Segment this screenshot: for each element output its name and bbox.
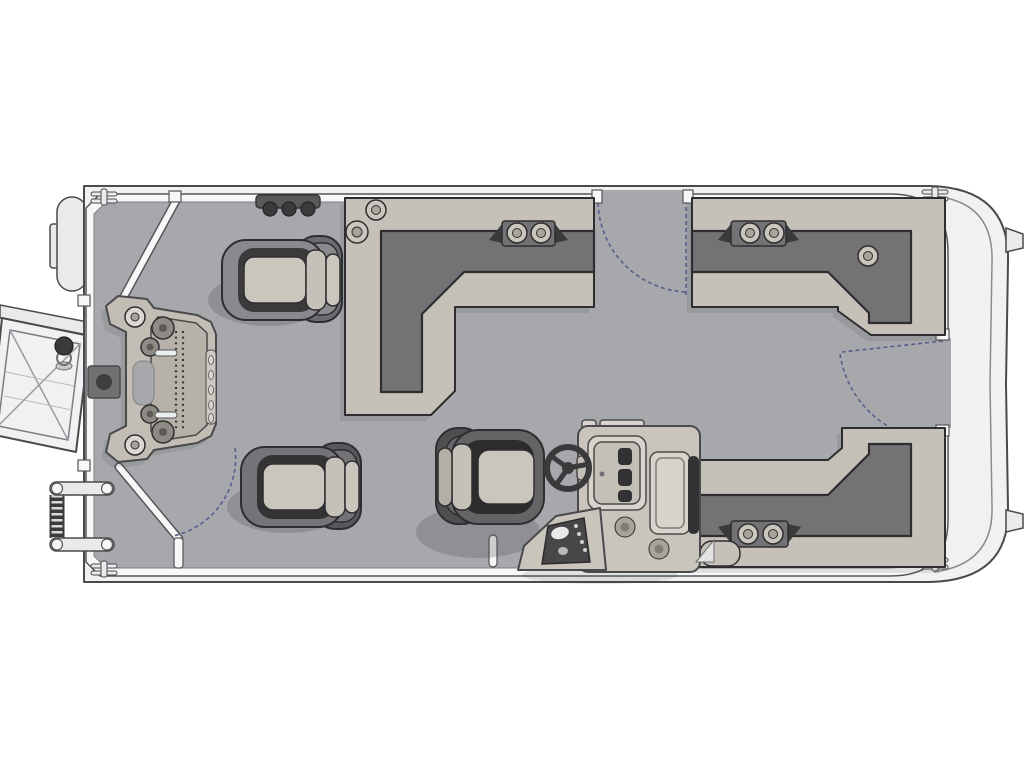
stern-gate-opening — [935, 338, 951, 428]
wheel-hub — [562, 462, 574, 474]
console-cup-inner — [147, 411, 154, 418]
edge-fastener — [209, 401, 214, 410]
ladder-rung-end — [52, 539, 63, 550]
pontoon-floorplan-page — [0, 0, 1024, 768]
chair-back-cushion-outer — [345, 461, 359, 513]
ladder-rung-end — [52, 483, 63, 494]
edge-fastener — [209, 386, 214, 395]
edge-fastener — [209, 356, 214, 365]
chair-back-cushion — [325, 457, 345, 517]
cup-holder-inner — [770, 229, 779, 238]
cup-holder-inner — [744, 530, 753, 539]
cleat-stem — [101, 189, 107, 205]
bow-gate-post-lower — [78, 460, 90, 471]
ladder-rung-end — [102, 483, 113, 494]
console-hinge-pin — [155, 350, 177, 356]
bow-rail-end-post — [174, 538, 183, 568]
corner-cup-holder-inner — [864, 252, 873, 261]
ladder-rung-end — [102, 539, 113, 550]
fitting-knob — [301, 202, 315, 216]
console-cup-inner — [159, 324, 167, 332]
chair-back-cushion — [452, 444, 472, 510]
gauge-slot — [618, 448, 632, 465]
port-aft-captain-chair — [227, 443, 361, 533]
tow-bar-fitting — [256, 195, 320, 216]
helm-captain-chair — [416, 428, 544, 558]
chair-back-cushion — [306, 250, 326, 310]
console-cup-inner — [159, 428, 167, 436]
port-forward-captain-chair — [208, 236, 342, 326]
corner-cup-holder-inner — [372, 206, 381, 215]
panel-button — [574, 524, 578, 528]
bow-nose-cone — [50, 197, 87, 291]
console-cup-inner — [655, 545, 664, 554]
bow-gate-console — [88, 296, 216, 468]
bow-nose-body — [57, 197, 87, 291]
fitting-knob — [263, 202, 277, 216]
console-hinge-pin — [155, 412, 177, 418]
engine-mount-tab-top — [1006, 228, 1023, 252]
engine-mount-tab-bottom — [1006, 510, 1023, 532]
console-cup-inner — [147, 344, 154, 351]
ignition-dot — [600, 472, 605, 477]
pedestal-mount-socket — [96, 374, 112, 390]
platform-latch-knob — [55, 337, 73, 355]
fitting-knob — [282, 202, 296, 216]
cup-holder-inner — [769, 530, 778, 539]
edge-fastener — [209, 414, 214, 423]
panel-switch — [558, 547, 568, 555]
corner-cup-holder-inner — [352, 227, 362, 237]
cup-holder-inner — [537, 229, 546, 238]
bow-rail-top-post — [169, 191, 181, 202]
pontoon-floorplan — [0, 0, 1024, 768]
panel-button — [580, 540, 584, 544]
gauge-slot — [618, 469, 632, 486]
chair-seat-cushion — [244, 257, 306, 303]
console-handle-cutout — [133, 361, 154, 405]
cleat-stem — [101, 561, 107, 577]
edge-fastener — [209, 371, 214, 380]
bow-boarding-platform — [0, 305, 93, 452]
console-cup-inner — [621, 523, 630, 532]
panel-button — [583, 548, 587, 552]
gauge-slot — [618, 490, 632, 502]
chair-back-cushion-outer — [438, 448, 452, 506]
console-cup-inner — [131, 313, 139, 321]
cup-holder-inner — [746, 229, 755, 238]
chair-seat-cushion — [478, 450, 534, 504]
bow-gate-post-upper — [78, 295, 90, 306]
console-speaker-slot — [688, 456, 699, 534]
cup-holder-inner — [513, 229, 522, 238]
port-gate-opening — [598, 190, 686, 204]
panel-button — [577, 532, 581, 536]
chair-seat-cushion — [263, 464, 325, 510]
chair-back-cushion-outer — [326, 254, 340, 306]
console-cup-inner — [131, 441, 139, 449]
